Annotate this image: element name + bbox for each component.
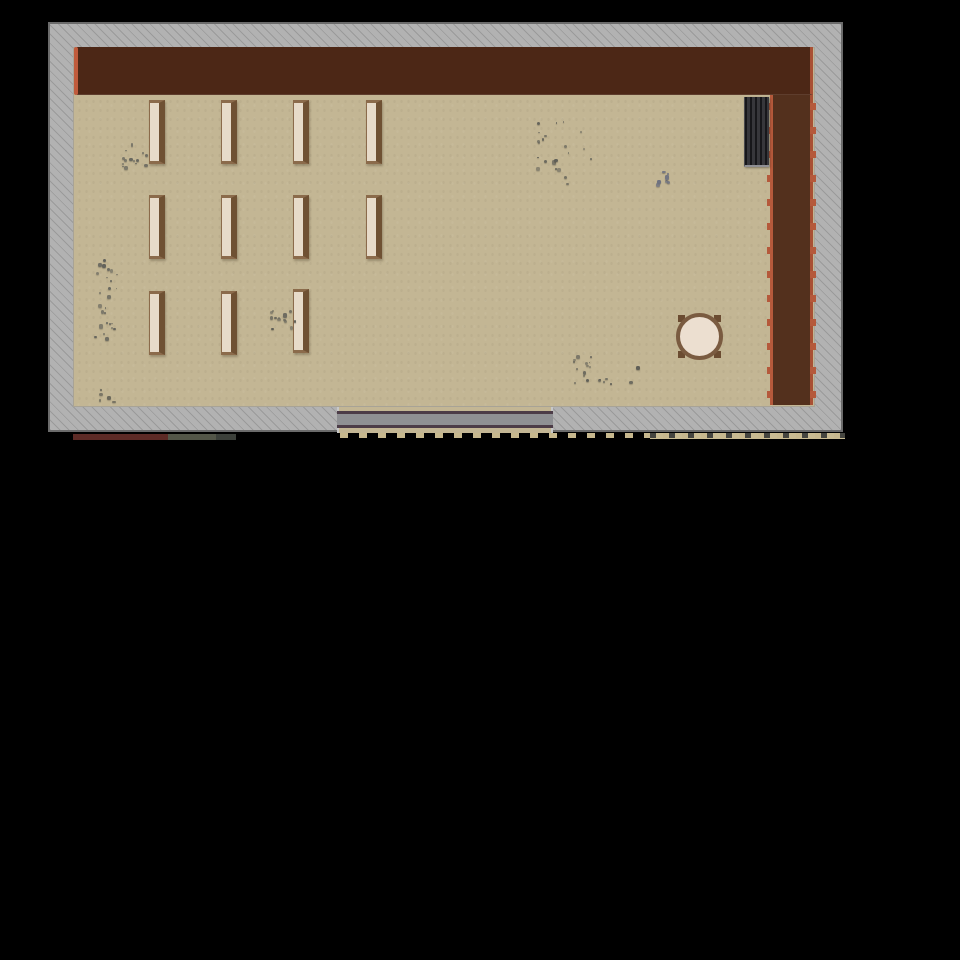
map-fragment (216, 434, 236, 440)
bottom-dash-strip-dark (650, 433, 845, 438)
fragment-layer (0, 0, 960, 960)
map-canvas (0, 0, 960, 960)
map-fragment (73, 434, 168, 440)
map-fragment (168, 434, 216, 440)
